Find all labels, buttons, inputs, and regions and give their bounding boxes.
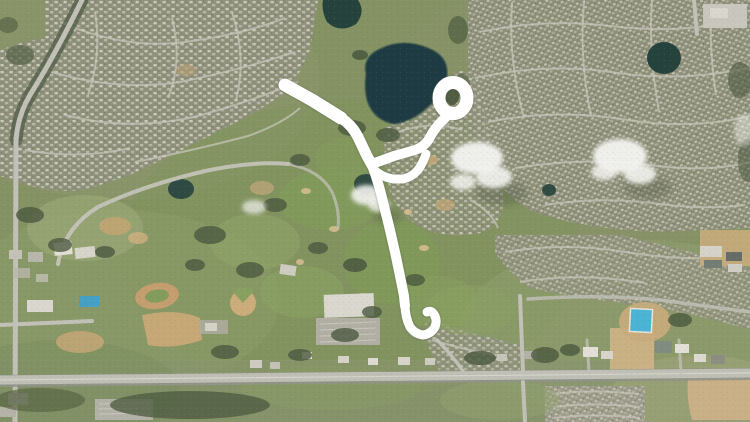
satellite-map-view [0, 0, 750, 422]
grain-shape [0, 0, 750, 422]
layer-grain [0, 0, 750, 422]
satellite-map-image [0, 0, 750, 422]
